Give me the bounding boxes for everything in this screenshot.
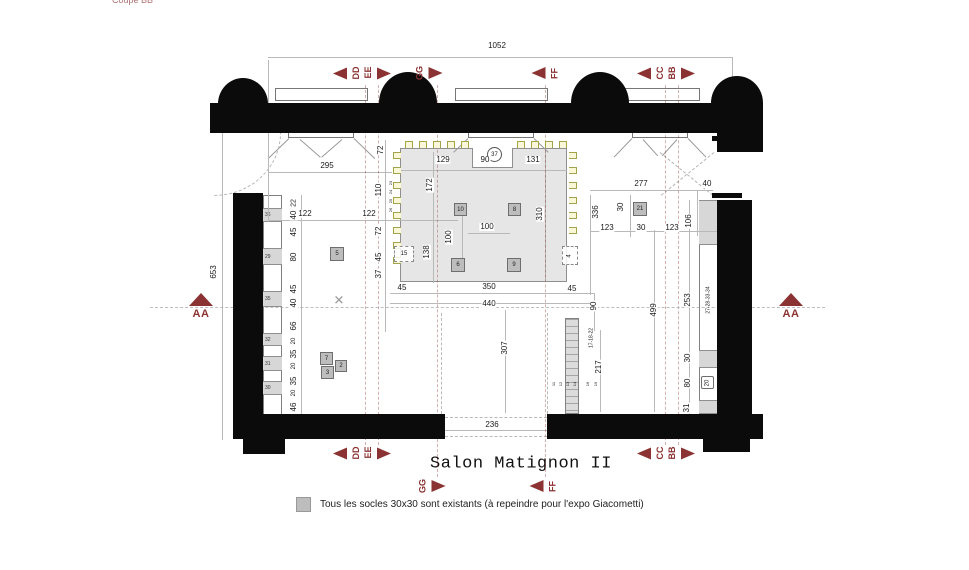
chair-icon <box>569 167 577 174</box>
dashed-line <box>441 313 442 414</box>
section-label: GG <box>418 479 428 493</box>
wall-column <box>711 76 763 103</box>
reserved-spot-box: 15 <box>394 246 414 262</box>
dim-label: 653 <box>210 264 218 279</box>
dim-label: 35 <box>290 349 298 360</box>
legend: Tous les socles 30x30 sont existants (à … <box>296 497 644 512</box>
wall-column <box>571 72 629 103</box>
section-label: BB <box>667 67 677 80</box>
pedestal-strip-segment <box>699 350 718 368</box>
triangle-left-icon <box>333 67 347 79</box>
pedestal-number: 9 <box>512 262 515 268</box>
dim-label: 138 <box>423 244 431 259</box>
chair-icon <box>569 182 577 189</box>
dashed-line <box>445 417 547 418</box>
spot-number: 15 <box>401 251 408 257</box>
dimension-line <box>268 57 732 58</box>
triangle-right-icon <box>377 67 391 79</box>
dim-label: 100 <box>445 229 453 244</box>
pedestal-box: 7 <box>320 352 333 365</box>
section-marker: CCBB <box>637 447 695 460</box>
pedestal-box: 8 <box>508 203 521 216</box>
pedestal-number: 31 <box>265 361 271 367</box>
dim-label: 122 <box>361 210 376 218</box>
dim-label: 19 <box>594 382 598 386</box>
triangle-right-icon <box>681 67 695 79</box>
dimension-line <box>301 195 302 416</box>
triangle-left-icon <box>530 480 544 492</box>
section-label: GG <box>415 66 425 80</box>
chair-icon <box>569 227 577 234</box>
drawing-title: Salon Matignon II <box>430 455 612 474</box>
chair-icon <box>393 227 401 234</box>
dim-label: 72 <box>377 145 385 156</box>
dashed-line <box>547 313 548 414</box>
dim-label: 16 <box>586 382 590 386</box>
dim-label: 45 <box>567 285 578 293</box>
pedestal-box: 2 <box>335 360 347 372</box>
section-marker: FF <box>530 480 559 492</box>
dim-label: 24 <box>389 190 393 194</box>
spot-number: 4 <box>567 254 573 257</box>
wall-segment <box>233 414 445 439</box>
pedestal-number: 30 <box>265 385 271 391</box>
dimension-line <box>630 195 631 237</box>
chair-icon <box>531 141 539 148</box>
dim-label: 106 <box>685 213 693 228</box>
triangle-up-icon <box>779 293 803 306</box>
dim-label: 236 <box>484 421 499 429</box>
chair-icon <box>461 141 469 148</box>
dim-label: 310 <box>536 206 544 221</box>
dim-label: 129 <box>435 156 450 164</box>
dashed-line <box>445 436 547 437</box>
dim-label: 23 <box>389 181 393 185</box>
dim-label: 90 <box>590 301 598 312</box>
pedestal-box: 21 <box>633 202 647 216</box>
dimension-line <box>400 170 567 171</box>
dimension-line <box>268 60 269 222</box>
dim-label: 440 <box>481 300 496 308</box>
dimension-line <box>505 310 506 413</box>
section-label: AA <box>193 308 210 320</box>
section-label: BB <box>667 447 677 460</box>
dim-label: 122 <box>297 210 312 218</box>
dim-label: 80 <box>290 252 298 263</box>
triangle-left-icon <box>532 67 546 79</box>
dimension-line <box>433 152 434 283</box>
wall-column <box>218 78 268 104</box>
pedestal-number: 10 <box>457 207 464 213</box>
dim-label: 90 <box>480 156 491 164</box>
dim-label: 100 <box>479 223 494 231</box>
wall-segment <box>703 439 750 452</box>
section-label: DD <box>351 447 361 460</box>
window-sill <box>275 88 368 101</box>
chair-icon <box>569 152 577 159</box>
section-label: CC <box>655 447 665 460</box>
dim-label: 336 <box>592 204 600 219</box>
door-swing-arc <box>214 133 281 196</box>
pedestal-strip-segment: 30 <box>263 381 282 395</box>
chair-icon <box>393 212 401 219</box>
triangle-right-icon <box>377 447 391 459</box>
dim-label: 17-18-22 <box>590 328 595 348</box>
dimension-line <box>697 190 698 236</box>
section-marker: CCBB <box>637 67 695 80</box>
pedestal-number: 6 <box>456 262 459 268</box>
dim-label: 40 <box>702 180 713 188</box>
dim-label: 27-28-33-34 <box>707 286 712 313</box>
floor-plan-canvas: Coupe BB Salon Matignon II Tous les socl… <box>0 0 969 570</box>
dim-label: ✕ <box>334 294 345 307</box>
section-marker-aa: AA <box>779 293 803 320</box>
dim-label: 45 <box>290 227 298 238</box>
dim-label: 253 <box>684 292 692 307</box>
dim-label: 277 <box>633 180 648 188</box>
chair-icon <box>559 141 567 148</box>
dim-label: 66 <box>290 321 298 332</box>
dimension-line <box>654 230 655 412</box>
dim-label: 14 <box>573 382 577 386</box>
dim-label: 40 <box>290 210 298 221</box>
chair-icon <box>393 182 401 189</box>
dim-label: 307 <box>501 340 509 355</box>
pedestal-number: 5 <box>335 251 338 257</box>
pedestal-number: 32 <box>265 337 271 343</box>
chair-icon <box>447 141 455 148</box>
wall-segment <box>233 193 263 418</box>
pedestal-strip-segment <box>699 400 718 414</box>
chair-icon <box>569 197 577 204</box>
dim-label: 80 <box>684 378 692 389</box>
dimension-line <box>468 233 510 234</box>
pedestal-strip-segment: 32 <box>263 333 282 346</box>
chair-icon <box>393 152 401 159</box>
pedestal-box: 6 <box>451 258 465 272</box>
section-marker: FF <box>532 67 561 79</box>
section-label: EE <box>363 447 373 459</box>
dim-label: 22 <box>291 198 298 208</box>
dim-label: 37 <box>375 269 383 280</box>
wall-segment <box>243 439 285 454</box>
dim-label: 123 <box>599 224 614 232</box>
dim-label: 30 <box>636 224 647 232</box>
window-sill <box>620 88 700 101</box>
pedestal-strip-segment: 35 <box>263 291 282 307</box>
section-marker-aa: AA <box>189 293 213 320</box>
window-splay-line <box>321 139 342 157</box>
legend-swatch-icon <box>296 497 311 512</box>
dim-label: 25 <box>389 199 393 203</box>
chair-icon <box>405 141 413 148</box>
dim-label: 350 <box>481 283 496 291</box>
reserved-spot-box: 4 <box>562 246 578 265</box>
pedestal-strip-segment <box>699 200 718 245</box>
window-sill <box>455 88 548 101</box>
dim-label: 26 <box>389 208 393 212</box>
pedestal-number: 2 <box>339 363 342 369</box>
dim-label: 123 <box>664 224 679 232</box>
dim-label: 1052 <box>487 42 507 50</box>
triangle-right-icon <box>681 447 695 459</box>
window-splay-line <box>688 138 707 157</box>
chair-icon <box>393 167 401 174</box>
triangle-right-icon <box>429 67 443 79</box>
window-splay-line <box>643 139 658 156</box>
dim-label: 45 <box>397 284 408 292</box>
section-label: DD <box>351 67 361 80</box>
dim-label: 45 <box>375 252 383 263</box>
pedestal-number: 29 <box>265 254 271 260</box>
dim-label: 20 <box>291 338 297 345</box>
wall-segment <box>712 193 742 198</box>
section-marker: DDEE <box>333 447 391 460</box>
chair-icon <box>393 197 401 204</box>
dimension-line <box>445 430 547 431</box>
pedestal-box: 9 <box>507 258 521 272</box>
wall-segment <box>717 200 752 418</box>
dimension-line <box>594 293 595 331</box>
pedestal-box: 3 <box>321 366 334 379</box>
pedestal-number: 21 <box>637 206 644 212</box>
dim-label: 131 <box>525 156 540 164</box>
dim-label: 20 <box>291 390 297 397</box>
dimension-line <box>268 172 392 173</box>
chair-icon <box>517 141 525 148</box>
dimension-line <box>590 190 713 191</box>
pedestal-number: 8 <box>513 207 516 213</box>
dim-label: 172 <box>426 177 434 192</box>
dim-label: 12 <box>559 382 563 386</box>
wall-segment <box>712 136 741 141</box>
section-cut-line <box>665 85 666 445</box>
dim-label: 46 <box>290 402 298 413</box>
triangle-left-icon <box>333 447 347 459</box>
dim-label: 72 <box>375 226 383 237</box>
bottom-partition-strip <box>565 318 579 414</box>
dimension-line <box>385 140 386 332</box>
pedestal-number: 20 <box>705 379 711 386</box>
section-label: FF <box>550 68 560 79</box>
dimension-line <box>390 293 594 294</box>
pedestal-box: 20 <box>701 376 714 389</box>
section-cut-line <box>378 85 379 445</box>
dimension-line <box>462 215 463 260</box>
dim-label: 295 <box>319 162 334 170</box>
section-cut-line <box>678 85 679 445</box>
wall-segment <box>210 103 763 133</box>
dim-label: 30 <box>684 353 692 364</box>
section-label: CC <box>655 67 665 80</box>
circle-number: 37 <box>491 152 498 158</box>
cut-off-header-text: Coupe BB <box>112 0 153 5</box>
pedestal-strip-segment: 31 <box>263 356 282 371</box>
dim-label: 31 <box>683 403 691 414</box>
pedestal-strip-segment: 29 <box>263 248 282 265</box>
section-marker: DDEE <box>333 67 391 80</box>
dim-label: 499 <box>650 302 658 317</box>
dimension-line <box>222 107 223 440</box>
section-label: EE <box>363 67 373 79</box>
dim-label: 40 <box>290 298 298 309</box>
section-cut-line <box>365 85 366 445</box>
legend-text: Tous les socles 30x30 sont existants (à … <box>320 499 644 510</box>
dim-label: 30 <box>617 202 625 213</box>
window-splay-line <box>300 139 321 157</box>
dim-label: 13 <box>566 382 570 386</box>
section-marker: GG <box>414 66 443 80</box>
pedestal-number: 3 <box>326 370 329 376</box>
pedestal-box: 10 <box>454 203 467 216</box>
dim-label: 110 <box>375 183 383 198</box>
triangle-left-icon <box>637 447 651 459</box>
section-label: FF <box>548 481 558 492</box>
pedestal-number: 7 <box>325 356 328 362</box>
dim-label: 20 <box>291 363 297 370</box>
wall-segment <box>547 414 763 439</box>
section-marker: GG <box>417 479 446 493</box>
chair-icon <box>419 141 427 148</box>
dim-label: 35 <box>290 376 298 387</box>
triangle-right-icon <box>432 480 446 492</box>
chair-icon <box>569 212 577 219</box>
section-label: AA <box>783 308 800 320</box>
chair-icon <box>433 141 441 148</box>
chair-icon <box>545 141 553 148</box>
triangle-left-icon <box>637 67 651 79</box>
window-splay-line <box>614 138 633 157</box>
dim-label: 45 <box>290 284 298 295</box>
dim-label: 11 <box>552 382 556 386</box>
pedestal-number: 35 <box>265 296 271 302</box>
triangle-up-icon <box>189 293 213 306</box>
dim-label: 217 <box>595 359 603 374</box>
pedestal-box: 5 <box>330 247 344 261</box>
